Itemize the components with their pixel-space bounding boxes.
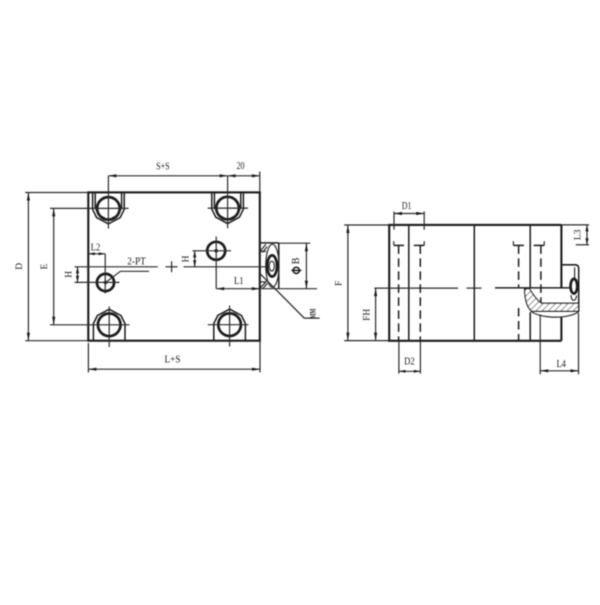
svg-text:H: H — [64, 271, 74, 278]
svg-text:MM: MM — [308, 309, 318, 319]
svg-text:FH: FH — [363, 309, 373, 321]
svg-text:E: E — [40, 264, 50, 270]
svg-text:B: B — [291, 257, 302, 264]
svg-text:S+S: S+S — [156, 162, 170, 173]
svg-text:2-PT: 2-PT — [127, 256, 146, 267]
svg-text:D: D — [15, 263, 25, 270]
svg-text:D2: D2 — [404, 357, 415, 368]
svg-text:L4: L4 — [556, 359, 566, 370]
svg-text:L3: L3 — [574, 229, 584, 240]
svg-text:D1: D1 — [402, 201, 412, 212]
svg-text:H: H — [181, 255, 191, 262]
svg-text:L+S: L+S — [165, 354, 181, 365]
svg-text:20: 20 — [237, 161, 245, 172]
svg-text:L1: L1 — [234, 276, 244, 287]
svg-text:F: F — [334, 281, 344, 286]
svg-text:L2: L2 — [91, 242, 101, 253]
